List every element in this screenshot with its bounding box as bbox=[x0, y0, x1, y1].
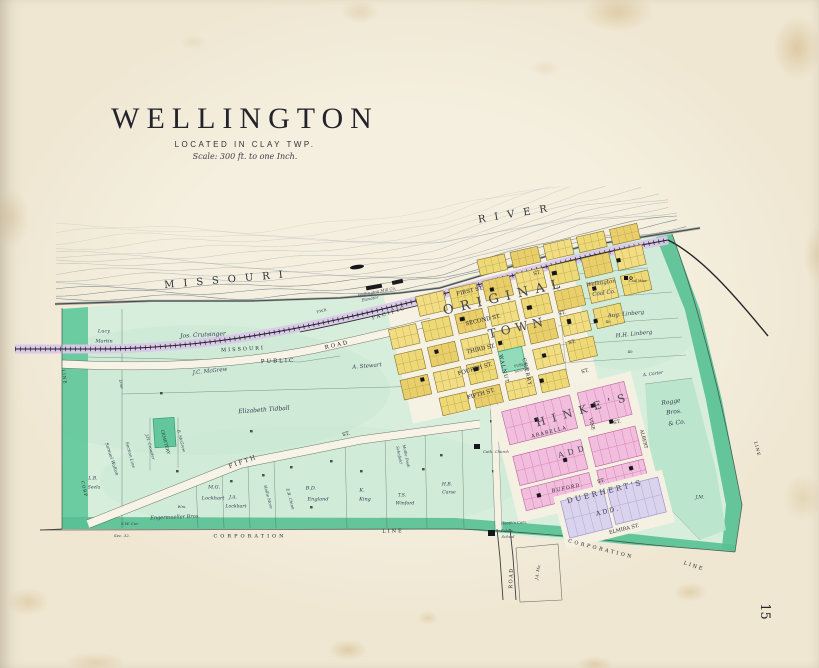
house-mark bbox=[176, 470, 179, 472]
house-mark bbox=[360, 470, 363, 472]
map-label-corp-s: CORPORATION bbox=[213, 534, 286, 540]
river-wave-line bbox=[56, 189, 542, 234]
map-label-missouri-river: MISSOURI bbox=[164, 269, 292, 291]
map-label-hb: H.B. bbox=[441, 482, 453, 488]
map-label-lb: L.B. bbox=[87, 476, 98, 482]
map-label-forty-2: 40 bbox=[627, 349, 633, 354]
house-mark bbox=[160, 392, 163, 394]
map-label-mg: M.G. bbox=[207, 485, 221, 491]
map-label-line-s: LINE bbox=[382, 528, 404, 535]
wellington-map: MISSOURIRIVERMISSOURIPACIFICF.W.B.PUBLIC… bbox=[0, 0, 819, 668]
map-label-forty-1: 40 bbox=[605, 319, 611, 324]
south-road bbox=[40, 529, 562, 602]
house-mark bbox=[330, 460, 333, 462]
map-label-ts: T.S. bbox=[398, 493, 407, 499]
levee-warehouse bbox=[392, 279, 404, 285]
coal-mine-icon bbox=[624, 276, 628, 280]
river-wave-line bbox=[56, 187, 560, 238]
map-label-ja-ma: J.A. Ma. bbox=[534, 564, 542, 581]
map-label-line-se: LINE bbox=[683, 560, 705, 572]
river-wave-line bbox=[56, 186, 605, 254]
map-label-wm: Wm. bbox=[177, 504, 186, 509]
map-label-lockhart-1: Lockhart bbox=[201, 496, 226, 502]
map-label-lockhart-2: Lockhart bbox=[225, 504, 247, 510]
map-label-lucy: Lucy bbox=[97, 329, 110, 335]
map-label-public-school-2: School bbox=[502, 534, 516, 539]
house-mark bbox=[310, 506, 313, 508]
catholic-church-building bbox=[474, 444, 480, 449]
atlas-page: MISSOURIRIVERMISSOURIPACIFICF.W.B.PUBLIC… bbox=[0, 0, 819, 668]
house-mark bbox=[440, 454, 443, 456]
map-label-coal-mine: Coal Mine bbox=[629, 279, 647, 283]
map-label-line-e: LINE bbox=[753, 441, 762, 457]
public-school-building bbox=[488, 530, 495, 536]
map-label-public-road-1: PUBLIC bbox=[261, 358, 296, 365]
map-label-seela: Seela bbox=[88, 485, 101, 491]
house-mark bbox=[250, 430, 253, 432]
house-mark bbox=[262, 474, 265, 476]
map-label-k: K. bbox=[358, 488, 365, 494]
steamboat-icon bbox=[350, 264, 364, 270]
page-number: 15 bbox=[757, 603, 772, 620]
map-label-carse: Carse bbox=[442, 490, 456, 496]
map-label-public-school-1: Public bbox=[500, 528, 514, 533]
map-label-jm: J.M. bbox=[694, 495, 705, 501]
map-label-winford: Winford bbox=[396, 501, 415, 507]
map-label-river: RIVER bbox=[477, 202, 556, 225]
map-label-ja: J.A. bbox=[228, 495, 237, 501]
map-label-england: England bbox=[306, 497, 328, 503]
map-label-bd: B.D. bbox=[305, 486, 317, 492]
map-label-martin: Martin bbox=[94, 339, 112, 345]
map-label-road-s: ROAD bbox=[508, 567, 515, 589]
house-mark bbox=[422, 468, 425, 470]
map-label-king: King bbox=[358, 497, 371, 503]
map-label-sec-32: Sec. 32. bbox=[114, 533, 130, 538]
house-mark bbox=[290, 466, 293, 468]
map-label-sw-cor: S.W. Cor. bbox=[121, 521, 139, 526]
house-mark bbox=[230, 480, 233, 482]
map-label-cath-church: Cath. Church bbox=[483, 449, 509, 454]
